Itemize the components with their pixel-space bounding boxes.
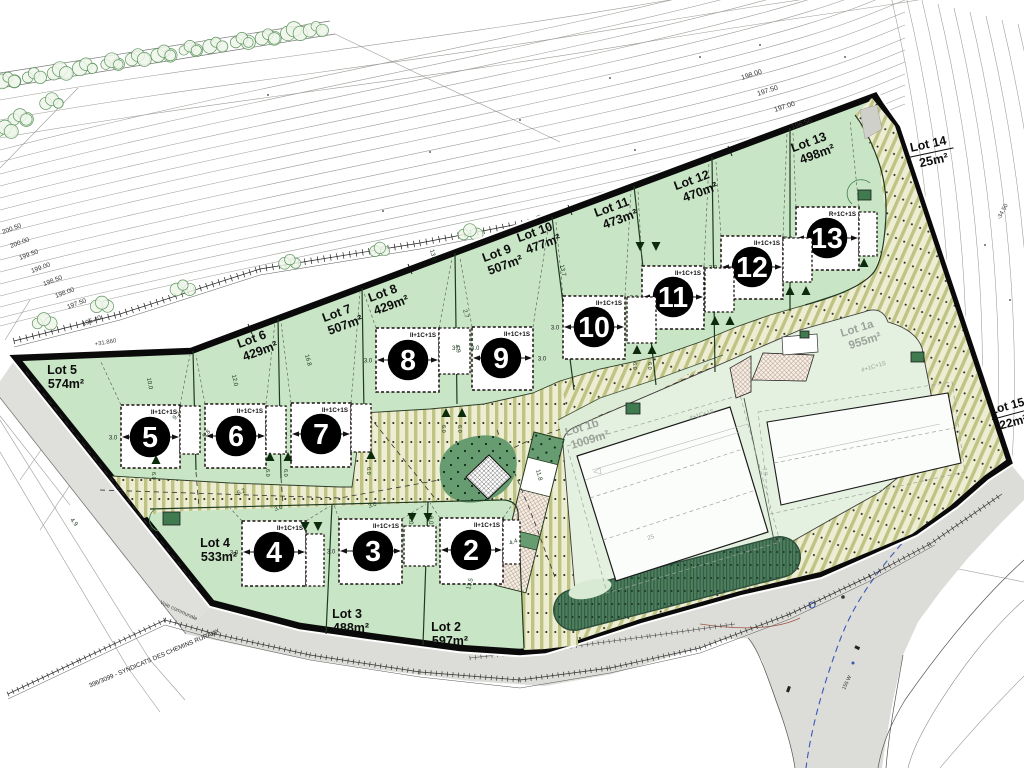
svg-text:6.0: 6.0 bbox=[407, 516, 413, 525]
svg-text:597m²: 597m² bbox=[432, 634, 468, 648]
svg-text:9: 9 bbox=[493, 343, 509, 375]
svg-text:6.0: 6.0 bbox=[264, 469, 270, 477]
svg-text:10: 10 bbox=[578, 312, 610, 344]
svg-text:II+1C+1S: II+1C+1S bbox=[504, 331, 530, 338]
svg-text:Lot 5: Lot 5 bbox=[47, 363, 77, 377]
svg-text:2: 2 bbox=[463, 535, 479, 567]
svg-text:6.0: 6.0 bbox=[150, 472, 156, 480]
svg-text:6.0: 6.0 bbox=[456, 425, 462, 433]
svg-text:3.0: 3.0 bbox=[538, 357, 547, 363]
svg-text:533m²: 533m² bbox=[201, 550, 237, 564]
svg-text:II+1C+1S: II+1C+1S bbox=[373, 523, 399, 530]
svg-text:6.0: 6.0 bbox=[282, 469, 288, 477]
svg-text:6.0: 6.0 bbox=[646, 362, 652, 370]
svg-text:6.0: 6.0 bbox=[631, 362, 637, 370]
svg-text:3.0: 3.0 bbox=[109, 436, 118, 442]
svg-text:6.0: 6.0 bbox=[440, 425, 446, 433]
svg-text:488m²: 488m² bbox=[333, 621, 369, 635]
svg-text:13: 13 bbox=[811, 223, 843, 255]
svg-text:II+1C+1S: II+1C+1S bbox=[277, 525, 303, 532]
svg-text:R+1C+1S: R+1C+1S bbox=[829, 211, 856, 218]
svg-text:II+1C+1S: II+1C+1S bbox=[322, 407, 348, 414]
svg-text:574m²: 574m² bbox=[48, 377, 84, 391]
svg-text:4: 4 bbox=[266, 537, 282, 569]
svg-text:Lot 3: Lot 3 bbox=[332, 607, 362, 621]
svg-text:3.0: 3.0 bbox=[364, 359, 373, 365]
svg-text:3.0: 3.0 bbox=[327, 550, 336, 556]
svg-text:II+1C+1S: II+1C+1S bbox=[754, 240, 780, 247]
svg-text:II+1C+1S: II+1C+1S bbox=[474, 522, 500, 529]
svg-text:12: 12 bbox=[736, 252, 768, 284]
svg-text:3: 3 bbox=[365, 536, 381, 568]
svg-text:Lot 4: Lot 4 bbox=[200, 536, 230, 550]
svg-text:5: 5 bbox=[142, 422, 158, 454]
svg-text:3.0: 3.0 bbox=[471, 346, 480, 352]
svg-text:Lot 2: Lot 2 bbox=[431, 620, 461, 634]
svg-text:II+1C+1S: II+1C+1S bbox=[410, 332, 436, 339]
svg-text:6.0: 6.0 bbox=[427, 516, 433, 525]
svg-text:6.0: 6.0 bbox=[365, 467, 371, 475]
svg-text:II+1C+1S: II+1C+1S bbox=[675, 270, 701, 277]
svg-text:6: 6 bbox=[228, 421, 244, 453]
svg-text:11: 11 bbox=[658, 282, 688, 314]
svg-text:II+1C+1S: II+1C+1S bbox=[596, 300, 622, 307]
svg-text:7: 7 bbox=[313, 419, 329, 451]
svg-text:II+1C+1S: II+1C+1S bbox=[237, 408, 263, 415]
svg-text:3.0: 3.0 bbox=[452, 346, 461, 352]
svg-text:8: 8 bbox=[400, 345, 416, 377]
svg-text:3.0: 3.0 bbox=[551, 326, 560, 332]
